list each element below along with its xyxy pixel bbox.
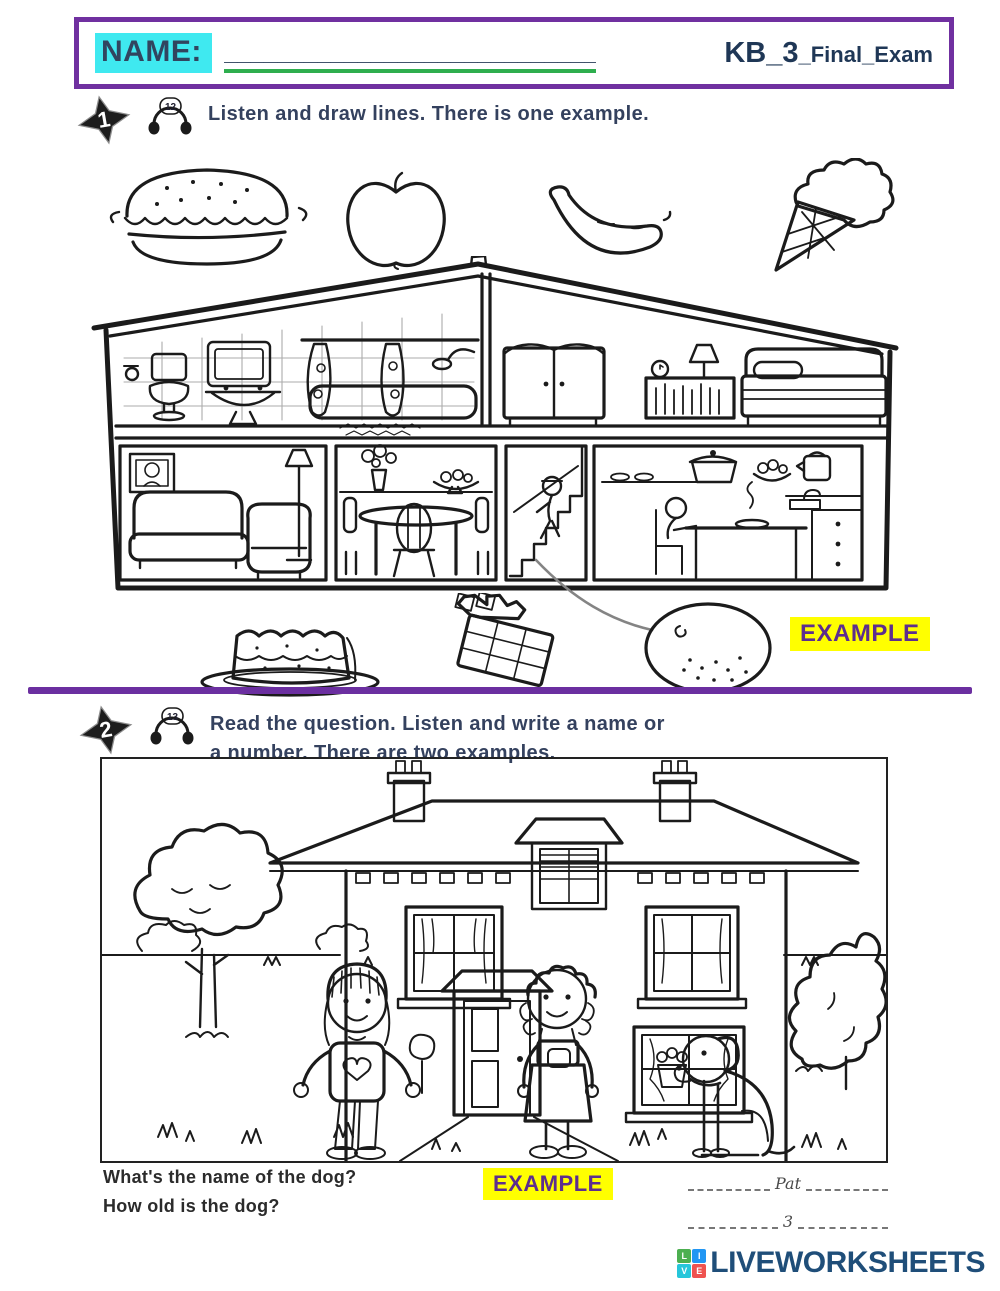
dashed-line bbox=[806, 1179, 888, 1191]
question-block: What's the name of the dog? How old is t… bbox=[103, 1163, 356, 1221]
liveworksheets-brand: LIVEWORKSHEETS bbox=[710, 1246, 985, 1280]
dashed-line bbox=[798, 1217, 888, 1229]
dollhouse-image[interactable] bbox=[90, 256, 906, 596]
headphones-icon: 13 bbox=[148, 706, 196, 750]
section1-star-badge: 1 bbox=[76, 94, 132, 146]
exam-title-main: KB_3 bbox=[724, 37, 798, 69]
answer-name-value[interactable]: Pat bbox=[770, 1177, 806, 1191]
question-dog-name: What's the name of the dog? bbox=[103, 1163, 356, 1192]
girl-heart-sweater bbox=[294, 964, 420, 1159]
room-dining bbox=[336, 445, 496, 580]
section1-example-badge: EXAMPLE bbox=[790, 617, 930, 651]
header-box: NAME: __________________________________… bbox=[74, 17, 954, 89]
chimney-right bbox=[654, 761, 696, 821]
logo-square-i: I bbox=[692, 1249, 706, 1263]
scene-picture-frame bbox=[100, 757, 888, 1163]
exam-title-sub: _Final_Exam bbox=[798, 42, 933, 67]
name-input-line[interactable]: __________________________________ bbox=[224, 33, 596, 73]
headphones-icon: 12 bbox=[146, 96, 194, 140]
section2-example-badge: EXAMPLE bbox=[483, 1168, 613, 1200]
section1-header: 1 12 Listen and draw lines. There is one… bbox=[76, 94, 876, 146]
cloud bbox=[137, 921, 200, 951]
tree bbox=[135, 824, 282, 1037]
section2-star-badge: 2 bbox=[78, 704, 134, 756]
answer-line-name[interactable]: Pat bbox=[688, 1165, 888, 1191]
room-living bbox=[120, 446, 326, 580]
chocolate-bar-image[interactable] bbox=[425, 593, 575, 701]
logo-square-l: L bbox=[677, 1249, 691, 1263]
room-stairs bbox=[506, 446, 586, 580]
cake-image[interactable] bbox=[195, 598, 385, 698]
logo-square-v: V bbox=[677, 1264, 691, 1278]
dog bbox=[675, 1036, 794, 1157]
worksheet-page: NAME: __________________________________… bbox=[0, 0, 1000, 1291]
dashed-line bbox=[688, 1217, 778, 1229]
upper-window-right bbox=[638, 907, 746, 1008]
question-dog-age: How old is the dog? bbox=[103, 1192, 356, 1221]
front-door bbox=[442, 971, 552, 1115]
room-bathroom bbox=[124, 314, 478, 435]
banana-image[interactable] bbox=[540, 176, 682, 260]
answer-line-age[interactable]: 3 bbox=[688, 1203, 888, 1229]
bush bbox=[789, 934, 886, 1089]
answer-age-value[interactable]: 3 bbox=[778, 1215, 798, 1229]
dentil-band bbox=[356, 873, 764, 883]
orange-image[interactable] bbox=[640, 598, 776, 694]
logo-square-e: E bbox=[692, 1264, 706, 1278]
room-bedroom bbox=[504, 344, 886, 425]
exam-title: KB_3_Final_Exam bbox=[724, 37, 933, 70]
small-plant bbox=[410, 1035, 435, 1093]
section2-instruction-line1: Read the question. Listen and write a na… bbox=[210, 713, 665, 735]
section1-instruction: Listen and draw lines. There is one exam… bbox=[208, 94, 649, 129]
name-label: NAME: bbox=[95, 33, 212, 73]
section2-number: 2 bbox=[74, 700, 138, 761]
section2-track-number: 13 bbox=[167, 712, 179, 723]
answer-fields: Pat 3 bbox=[688, 1165, 888, 1229]
section1-track-number: 12 bbox=[165, 102, 177, 113]
footer: L I V E LIVEWORKSHEETS bbox=[0, 1246, 985, 1280]
liveworksheets-logo-icon: L I V E bbox=[677, 1249, 706, 1278]
dashed-line bbox=[688, 1179, 770, 1191]
house-roof bbox=[94, 256, 896, 354]
room-kitchen bbox=[594, 446, 862, 580]
house-scene-image bbox=[102, 759, 886, 1161]
chimney-left bbox=[388, 761, 430, 821]
cloud bbox=[316, 924, 368, 951]
section-divider bbox=[28, 687, 972, 694]
apple-image[interactable] bbox=[335, 166, 457, 270]
section1-number: 1 bbox=[72, 90, 136, 151]
dormer-window bbox=[516, 819, 622, 909]
